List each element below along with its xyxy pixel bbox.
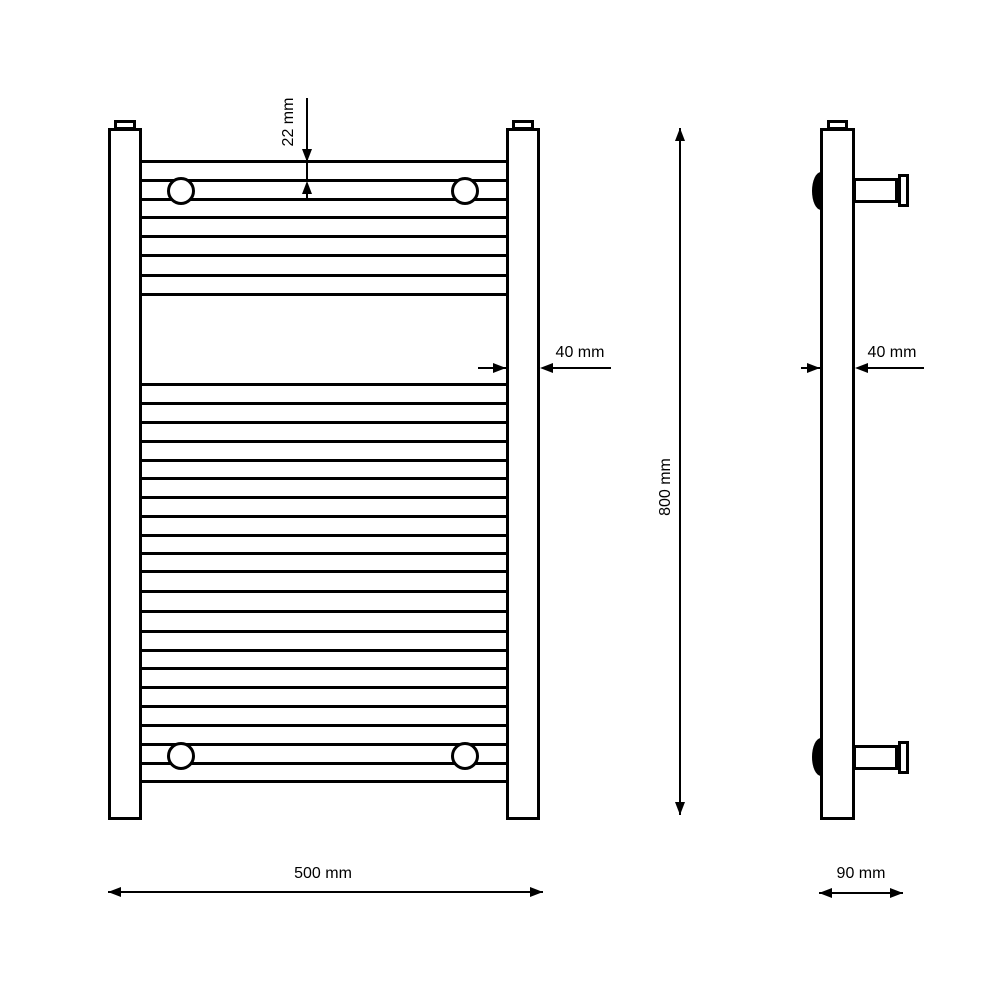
rung-line (141, 610, 507, 613)
rung-line (141, 198, 507, 201)
bracket-circle-bottom-left (167, 742, 195, 770)
rung-line (141, 515, 507, 518)
rung-line (141, 570, 507, 573)
rung-line (141, 724, 507, 727)
side-bracket-stub-bottom (853, 745, 898, 770)
rung-line (141, 421, 507, 424)
bracket-circle-bottom-right (451, 742, 479, 770)
front-right-rail (506, 128, 540, 820)
bracket-circle-top-right (451, 177, 479, 205)
dimension-label-overall-width: 500 mm (263, 866, 383, 882)
rung-line (141, 293, 507, 296)
rung-line (141, 216, 507, 219)
side-bracket-stub-top (853, 178, 898, 203)
arrow-right-icon (493, 363, 506, 373)
arrow-down-icon (302, 149, 312, 162)
side-rail (820, 128, 855, 820)
dimension-line (108, 891, 543, 893)
dimension-label-overall-height: 800 mm (658, 437, 674, 537)
arrow-left-icon (540, 363, 553, 373)
arrow-left-icon (108, 887, 121, 897)
dimension-line (868, 367, 924, 369)
dimension-line-tail (306, 194, 308, 200)
rung-line (141, 383, 507, 386)
dimension-line (679, 128, 681, 815)
rung-line (141, 686, 507, 689)
arrow-left-icon (855, 363, 868, 373)
dimension-label-tube: 22 mm (281, 72, 297, 172)
bracket-circle-top-left (167, 177, 195, 205)
side-bracket-plate-bottom (898, 741, 909, 774)
rung-line (141, 235, 507, 238)
front-left-rail (108, 128, 142, 820)
rung-line (141, 160, 507, 163)
rung-line (141, 459, 507, 462)
rung-line (141, 496, 507, 499)
arrow-up-icon (675, 128, 685, 141)
arrow-right-icon (807, 363, 820, 373)
dimension-line (306, 98, 308, 181)
rung-line (141, 705, 507, 708)
arrow-up-icon (302, 181, 312, 194)
arrow-left-icon (819, 888, 832, 898)
rung-line (141, 590, 507, 593)
dimension-label-rail-depth: 40 mm (860, 345, 924, 361)
rung-line (141, 477, 507, 480)
rung-line (141, 254, 507, 257)
rung-line (141, 534, 507, 537)
rung-line (141, 780, 507, 783)
rung-line (141, 274, 507, 277)
rung-line (141, 440, 507, 443)
arrow-right-icon (530, 887, 543, 897)
rung-line (141, 743, 507, 746)
dimension-line (553, 367, 611, 369)
rung-line (141, 630, 507, 633)
arrow-right-icon (890, 888, 903, 898)
dimension-label-overall-depth: 90 mm (806, 866, 916, 882)
side-bracket-plate-top (898, 174, 909, 207)
rung-line (141, 552, 507, 555)
rung-line (141, 667, 507, 670)
rung-line (141, 649, 507, 652)
rung-line (141, 179, 507, 182)
rung-line (141, 402, 507, 405)
arrow-down-icon (675, 802, 685, 815)
dimension-label-rail-width: 40 mm (548, 345, 612, 361)
towel-radiator-technical-drawing: 22 mm 40 mm 500 mm 800 mm (0, 0, 1000, 1000)
